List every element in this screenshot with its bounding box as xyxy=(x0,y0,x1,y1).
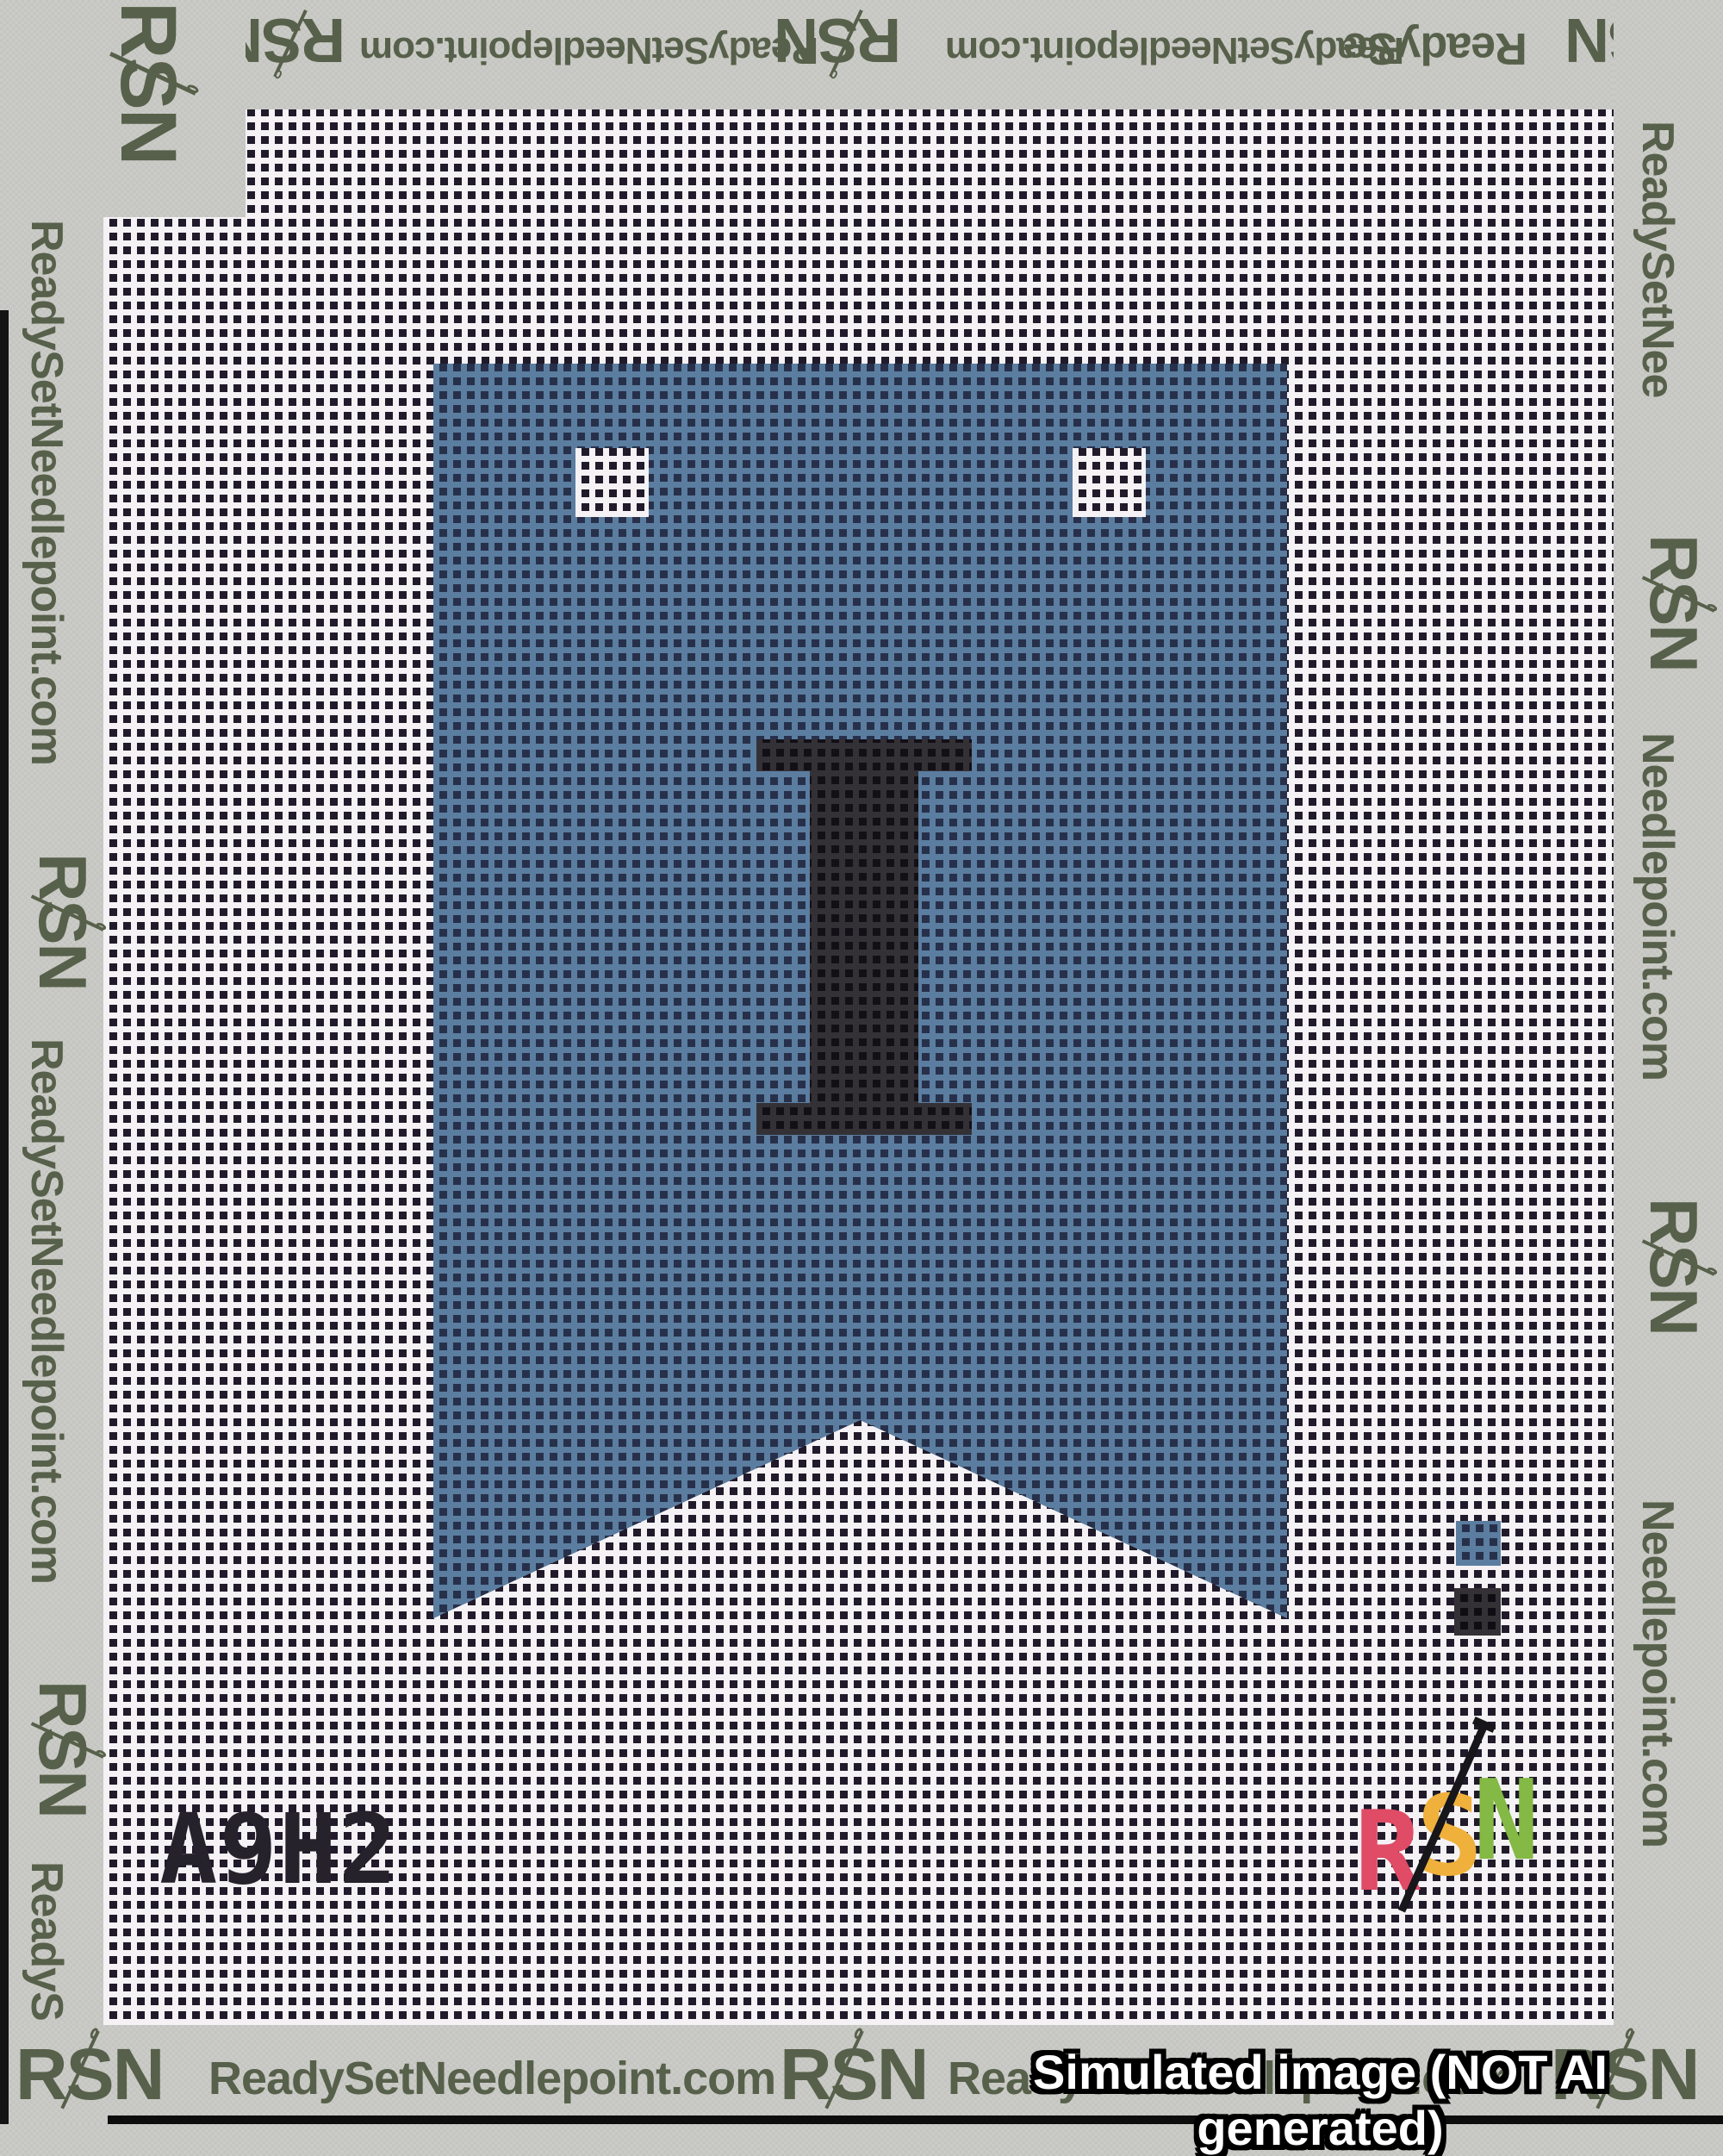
rsn-logo-n: N xyxy=(877,2034,928,2115)
rsn-logo-n: N xyxy=(104,109,192,164)
needlepoint-canvas-photo: { "tape": { "brand": "RSN", "brand_rs": … xyxy=(0,0,1723,2124)
rsn-logo: RSN xyxy=(96,853,233,920)
canvas-mesh: I A9H2 R S N xyxy=(103,109,1614,2025)
brand-url-fragment-clipped: ReadySetNee xyxy=(0,1861,103,2021)
rsn-logo: RSN xyxy=(1707,534,1723,601)
brand-url-fragment: Needlepoint.com xyxy=(1635,732,1680,1081)
brand-url-fragment: Needlepoint.com xyxy=(1635,1499,1680,1848)
hang-hole-right xyxy=(1073,448,1146,517)
rsn-logo-n: N xyxy=(113,2034,164,2115)
brand-url-text: ReadySetNeedlepoint.com xyxy=(208,2055,775,2102)
brand-url-text: ReadySetNeedlepoint.com xyxy=(946,31,1404,69)
letter-i-label: I xyxy=(756,739,757,740)
rsn-logo-n: N xyxy=(25,943,101,989)
brand-url-text: ReadySetNeedlepoint.com xyxy=(360,31,818,69)
brand-url-fragment: ReadySetNee xyxy=(24,1861,69,2021)
rsn-logo: RSN xyxy=(96,1680,233,1748)
rsn-logo-n: N xyxy=(1636,624,1712,670)
brand-url-text: ReadySetNeedlepoint.com xyxy=(24,220,69,765)
brand-url-text: ReadySetNeedlepoint.com xyxy=(24,1038,69,1584)
brand-url-fragment: ReadySetNee xyxy=(1635,121,1680,397)
rsn-logo: RSN xyxy=(16,2038,163,2110)
hang-hole-left xyxy=(575,448,649,517)
color-key-blue-swatch xyxy=(1456,1521,1501,1566)
color-key-black-swatch xyxy=(1454,1588,1501,1636)
rsn-logo: RSN xyxy=(775,9,901,71)
rsn-logo-n: N xyxy=(1636,1287,1712,1334)
letter-i: I xyxy=(756,739,972,1135)
rsn-logo-corner: RSN xyxy=(188,2,350,81)
brand-url-fragment: ReadySe xyxy=(1344,26,1527,71)
tape-corner-patch: RSN xyxy=(0,0,246,217)
rsn-logo-n: N xyxy=(25,1770,101,1816)
rsn-logo: RSN xyxy=(1707,1198,1723,1265)
brand-url-fragment-clipped: Needlepoint.com xyxy=(1614,1499,1723,2025)
banner-pennant: I xyxy=(433,364,1287,1618)
rsn-logo-n: N xyxy=(775,5,818,74)
rsn-logo: RSN xyxy=(780,2038,927,2110)
sku-code: A9H2 xyxy=(159,1794,399,1906)
stitched-rsn-logo: R S N xyxy=(1351,1738,1540,1928)
watermark: Simulated image (NOT AI generated) xyxy=(922,2044,1719,2156)
photo-edge-left xyxy=(0,310,9,2124)
stitched-letter-n: N xyxy=(1473,1757,1540,1885)
rsn-logo-n: N xyxy=(1566,5,1609,74)
